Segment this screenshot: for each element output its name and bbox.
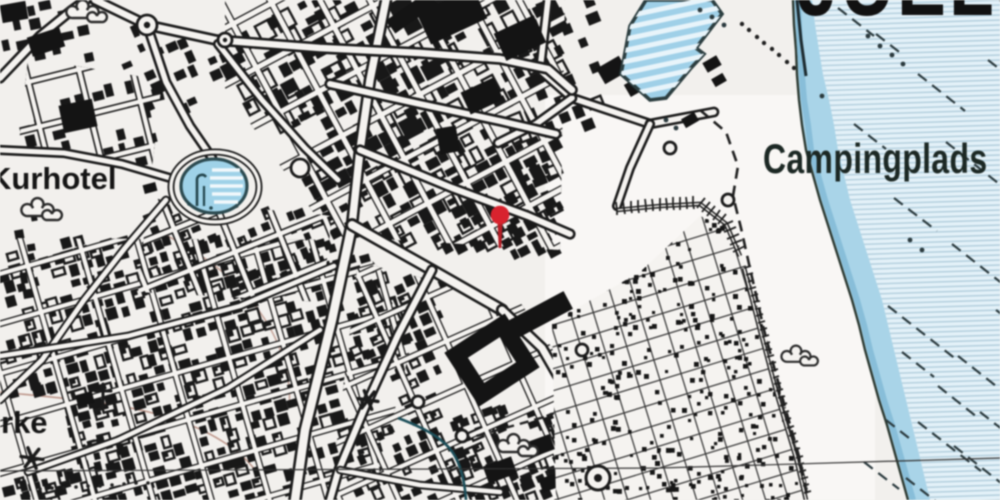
svg-text:Kirke: Kirke — [0, 405, 48, 440]
svg-text:JUELSMI: JUELSMI — [797, 0, 1000, 35]
svg-text:Campingplads: Campingplads — [763, 135, 987, 182]
svg-text:Kurhotel: Kurhotel — [0, 161, 116, 196]
